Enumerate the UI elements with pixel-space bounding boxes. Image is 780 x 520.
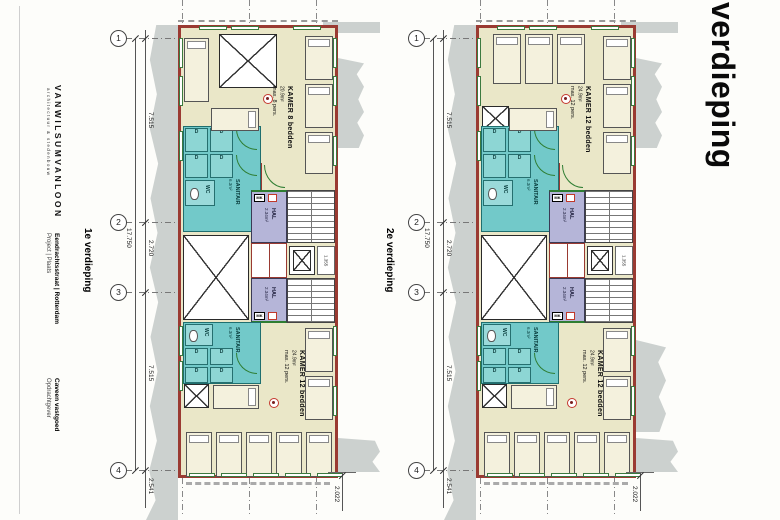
shower-stall: D: [483, 128, 506, 152]
hall-area: 2.34m²: [264, 208, 269, 222]
top-room-label: max. 12 pers. 24.9m² KAMER 12 bedden: [569, 86, 591, 153]
room-badge: [269, 398, 279, 408]
window-segment: [631, 136, 635, 166]
grid-marker-3: 3: [408, 284, 425, 301]
hall-lower: 2.34m² HAL MK: [549, 278, 585, 323]
elevator: [587, 246, 613, 275]
bed-pillow: [606, 331, 628, 339]
bed: [305, 132, 333, 174]
window-segment: [631, 386, 635, 416]
hall-label-block: 2.34m² HAL: [264, 287, 276, 301]
room-capacity: max. 12 pers.: [283, 350, 289, 383]
sanitair-label: SANITAIR: [532, 179, 538, 205]
bed-pillow: [308, 331, 330, 339]
elevator: [289, 246, 315, 275]
bed-pillow: [560, 37, 582, 45]
hall-lower: 2.34m² HAL MK: [251, 278, 287, 323]
dim-seg-below: 2.541: [147, 478, 154, 494]
grid-marker-1: 1: [110, 30, 127, 47]
void-shaft-middle: [183, 235, 249, 320]
bed: [511, 385, 557, 409]
sanitary-block-bottom: WC D D D D 6.3m² SANITAIR: [481, 322, 559, 384]
bottom-room-label: max. 12 pers. 24.9m² KAMER 12 bedden: [581, 350, 603, 417]
bed-pillow: [248, 111, 256, 128]
floorplan-sheet: architectuur & stedenbouw VANWILSUMVANLO…: [0, 0, 780, 520]
firm-name: VANWILSUMVANLOON: [53, 85, 63, 219]
grid-leader: [424, 292, 476, 293]
toilet-icon: [189, 330, 198, 342]
window-segment: [477, 38, 481, 68]
shower-stall: D: [483, 367, 506, 383]
shower-stall: D: [508, 154, 531, 178]
wc-room: WC: [483, 324, 511, 346]
room-name: KAMER 12 bedden: [298, 350, 305, 417]
dim-line-right: [640, 473, 641, 511]
sanitary-block-top: D D D D WC 6.3m² SANITAIR: [183, 126, 261, 232]
void-shaft-middle: [481, 235, 547, 320]
wc-room: WC: [185, 180, 215, 206]
window-segment: [221, 473, 247, 477]
bed-pillow: [607, 435, 627, 443]
context-band-left: [444, 25, 476, 520]
wc-label: WC: [204, 185, 210, 193]
window-segment: [477, 76, 481, 106]
window-segment: [333, 38, 337, 68]
bed: [216, 432, 242, 477]
room-capacity: max. 12 pers.: [581, 350, 587, 383]
bed-pillow: [219, 435, 239, 443]
floorplan-1e-verdieping: 1 2 3 4 17.750 7.515 2.720 7.515 2.541: [110, 0, 402, 520]
shower-stall: D: [483, 154, 506, 178]
toilet-icon: [488, 188, 497, 200]
door-arc: [534, 129, 555, 150]
bed: [305, 328, 333, 372]
door-arc: [534, 353, 555, 374]
dim-total: 17.750: [423, 228, 430, 248]
bed-pillow: [187, 41, 206, 49]
grid-line: [182, 478, 183, 514]
window-segment: [333, 136, 337, 166]
room-name: KAMER 12 bedden: [584, 86, 591, 153]
window-segment: [285, 473, 311, 477]
elevator-car: [591, 250, 609, 271]
window-segment: [477, 326, 481, 356]
wc-label: WC: [203, 328, 209, 336]
core-closets: [251, 243, 287, 278]
bed: [276, 432, 302, 477]
bed-pillow: [249, 435, 269, 443]
building-outline: D D D D WC 6.3m² SANITAIR: [476, 25, 636, 478]
room-area: 24.9m²: [577, 86, 583, 102]
bed-pillow: [577, 435, 597, 443]
bed: [544, 432, 570, 477]
sanitair-label-block: 6.3m² SANITAIR: [228, 327, 240, 353]
hall-area: 2.34m²: [562, 208, 567, 222]
building-outline: D D D D WC 6.3m² SANITAIR: [178, 25, 338, 478]
context-block-right-bottom: [338, 438, 380, 472]
dimension-line-total: [433, 38, 434, 470]
bed: [305, 84, 333, 128]
room-name: KAMER 12 bedden: [596, 350, 603, 417]
dimension-line-segments: [145, 30, 146, 508]
window-segment: [591, 26, 619, 30]
shower-stall: D: [210, 367, 233, 383]
project-label: Project | Plaats: [45, 233, 51, 273]
staircase-upper: [287, 190, 335, 243]
bed: [493, 34, 521, 84]
window-segment: [583, 473, 609, 477]
wc-label: WC: [501, 328, 507, 336]
dim-total: 17.750: [125, 228, 132, 248]
core-shaft: 1.355: [317, 246, 335, 275]
void-shaft-bottom-small: [482, 384, 507, 408]
room-badge: [561, 94, 571, 104]
hall-upper: MK 2.34m² HAL: [251, 190, 287, 243]
window-segment: [487, 473, 513, 477]
client-value: Caveen vastgoed: [53, 378, 60, 431]
bed-pillow: [309, 435, 329, 443]
toilet-icon: [190, 188, 199, 200]
grid-marker-4: 4: [408, 462, 425, 479]
sanitair-label-block: 6.3m² SANITAIR: [228, 179, 240, 205]
bed-pillow: [517, 435, 537, 443]
window-segment: [551, 473, 577, 477]
dim-seg-top: 7.515: [147, 112, 154, 128]
bed: [484, 432, 510, 477]
wc-label: WC: [502, 185, 508, 193]
room-name: KAMER 8 bedden: [286, 86, 293, 149]
grid-marker-3: 3: [110, 284, 127, 301]
floorplan-2e-verdieping: 1 2 3 4 17.750 7.515 2.720 7.515 2.541: [408, 0, 700, 520]
room-area: 24.9m²: [589, 350, 595, 366]
bed: [514, 432, 540, 477]
shower-stall: D: [210, 128, 233, 152]
sanitair-label: SANITAIR: [234, 179, 240, 205]
window-segment: [497, 26, 525, 30]
shower-stall: D: [185, 348, 208, 365]
sanitair-area: 6.3m²: [526, 179, 531, 191]
staircase-lower: [585, 278, 633, 323]
sanitary-block-bottom: WC D D D D 6.3m² SANITAIR: [183, 322, 261, 384]
bed-pillow: [546, 111, 554, 128]
hall-label-block: 2.34m² HAL: [264, 208, 276, 222]
void-shaft-top: [219, 34, 277, 88]
core-shaft: 1.355: [615, 246, 633, 275]
sanitair-label: SANITAIR: [234, 327, 240, 353]
elevator-car: [293, 250, 311, 271]
sanitair-label-block: 6.3m² SANITAIR: [526, 179, 538, 205]
entry-vestibule: [559, 163, 585, 190]
shower-stall: D: [185, 154, 208, 178]
staircase-upper: [585, 190, 633, 243]
bed: [604, 432, 630, 477]
bed-pillow: [606, 39, 628, 47]
sheet-big-title: verdieping: [704, 2, 741, 169]
dim-line-right: [342, 473, 343, 511]
project-block: Project | Plaats Eendrachtsstraat | Rott…: [45, 233, 60, 324]
bed: [603, 132, 631, 174]
entry-vestibule: [261, 163, 287, 190]
context-block-right-bottom: [636, 438, 678, 472]
sanitair-area: 6.3m²: [228, 327, 233, 339]
room-capacity: max. 12 pers.: [569, 86, 575, 119]
bed: [305, 36, 333, 80]
window-segment: [179, 326, 183, 356]
door-arc: [562, 165, 583, 188]
bed: [603, 84, 631, 128]
window-segment: [179, 131, 183, 161]
context-block-right-top: [338, 58, 364, 148]
bed: [211, 108, 259, 131]
shower-stall: D: [508, 128, 531, 152]
grid-leader: [126, 222, 178, 223]
staircase-lower: [287, 278, 335, 323]
hall-area: 2.34m²: [264, 287, 269, 301]
window-segment: [631, 76, 635, 106]
door-arc: [534, 155, 555, 176]
balcony-edge-top: [476, 20, 636, 22]
meter-cupboard: MK: [552, 312, 563, 320]
sanitair-area: 6.3m²: [526, 327, 531, 339]
door-arc: [264, 165, 285, 188]
door-arc: [236, 129, 257, 150]
hall-label: HAL: [270, 208, 276, 219]
hall-label: HAL: [270, 287, 276, 298]
window-segment: [231, 26, 259, 30]
grid-marker-4: 4: [110, 462, 127, 479]
core-closets: [549, 243, 585, 278]
hall-label: HAL: [568, 287, 574, 298]
hall-area: 2.34m²: [562, 287, 567, 301]
bed: [574, 432, 600, 477]
shower-stall: D: [483, 348, 506, 365]
grid-leader: [424, 222, 476, 223]
bed: [306, 432, 332, 477]
door-arc: [236, 155, 257, 176]
bed-pillow: [606, 135, 628, 143]
sheet-edge-line: [19, 6, 20, 514]
top-room-label: max. 8 pers. 20.9m² KAMER 8 bedden: [271, 86, 293, 149]
bed-pillow: [606, 379, 628, 387]
window-segment: [293, 26, 321, 30]
window-segment: [477, 361, 481, 391]
grid-marker-1: 1: [408, 30, 425, 47]
balcony-edge-bottom: [186, 482, 330, 485]
bed-pillow: [308, 39, 330, 47]
bed: [557, 34, 585, 84]
shower-stall: D: [508, 367, 531, 383]
bed-pillow: [547, 435, 567, 443]
context-band-left: [146, 25, 178, 520]
meter-cupboard: MK: [254, 312, 265, 320]
room-area: 20.9m²: [279, 86, 285, 102]
balcony-edge-bottom: [484, 482, 628, 485]
grid-line: [480, 478, 481, 514]
window-segment: [529, 26, 557, 30]
floor-title-left: 1e verdieping: [82, 228, 93, 292]
project-value: Eendrachtsstraat | Rotterdam: [53, 233, 60, 324]
fixture-box: [268, 312, 277, 320]
bed-pillow: [189, 435, 209, 443]
window-segment: [179, 76, 183, 106]
door-arc: [236, 353, 257, 374]
shower-stall: D: [185, 367, 208, 383]
sanitary-block-top: D D D D WC 6.3m² SANITAIR: [481, 126, 559, 232]
window-segment: [333, 386, 337, 416]
bed-pillow: [248, 388, 256, 406]
bed-pillow: [496, 37, 518, 45]
dim-seg-bottom: 7.515: [445, 365, 452, 381]
window-segment: [333, 76, 337, 106]
dim-right-bottom: 2.022: [333, 486, 340, 502]
room-badge: [263, 94, 273, 104]
bed-pillow: [528, 37, 550, 45]
meter-cupboard: MK: [254, 194, 265, 202]
hall-label-block: 2.34m² HAL: [562, 287, 574, 301]
shower-stall: D: [185, 128, 208, 152]
window-segment: [519, 473, 545, 477]
bottom-room-label: max. 12 pers. 24.9m² KAMER 12 bedden: [283, 350, 305, 417]
hall-label: HAL: [568, 208, 574, 219]
bed-pillow: [279, 435, 299, 443]
bed-pillow: [308, 379, 330, 387]
window-segment: [477, 131, 481, 161]
room-badge: [567, 398, 577, 408]
window-segment: [189, 473, 215, 477]
window-segment: [199, 26, 227, 30]
bed: [603, 328, 631, 372]
bed-pillow: [308, 135, 330, 143]
fixture-box: [268, 194, 277, 202]
bed: [603, 376, 631, 420]
hall-upper: MK 2.34m² HAL: [549, 190, 585, 243]
window-segment: [631, 38, 635, 68]
bed-pillow: [546, 388, 554, 406]
bed: [213, 385, 259, 409]
void-shaft-bottom-small: [184, 384, 209, 408]
dimension-line-segments: [443, 30, 444, 508]
room-area: 24.9m²: [291, 350, 297, 366]
shower-stall: D: [210, 154, 233, 178]
dim-seg-mid: 2.720: [445, 240, 452, 256]
window-segment: [179, 38, 183, 68]
client-label: Opdrachtgever: [45, 378, 51, 418]
client-block: Opdrachtgever Caveen vastgoed: [45, 378, 60, 431]
dim-seg-below: 2.541: [445, 478, 452, 494]
bed: [305, 376, 333, 420]
sanitair-label: SANITAIR: [532, 327, 538, 353]
fixture-box: [566, 194, 575, 202]
wc-room: WC: [483, 180, 513, 206]
dim-right-bottom: 2.022: [631, 486, 638, 502]
bed: [603, 36, 631, 80]
toilet-icon: [487, 330, 496, 342]
dim-seg-top: 7.515: [445, 112, 452, 128]
bed: [525, 34, 553, 84]
window-segment: [631, 326, 635, 356]
bed: [184, 38, 209, 102]
bed-pillow: [308, 87, 330, 95]
dim-seg-bottom: 7.515: [147, 365, 154, 381]
bed: [246, 432, 272, 477]
window-segment: [253, 473, 279, 477]
sanitair-area: 6.3m²: [228, 179, 233, 191]
bed: [186, 432, 212, 477]
balcony-edge-top: [178, 20, 338, 22]
core-dim: 1.355: [622, 255, 627, 266]
bed-pillow: [487, 435, 507, 443]
context-block-right-top: [636, 58, 662, 148]
hall-label-block: 2.34m² HAL: [562, 208, 574, 222]
core-dim: 1.355: [324, 255, 329, 266]
fixture-box: [566, 312, 575, 320]
firm-subtitle: architectuur & stedenbouw: [46, 88, 51, 176]
window-segment: [179, 361, 183, 391]
context-block-right-mid: [636, 340, 666, 432]
grid-leader: [126, 292, 178, 293]
window-segment: [333, 326, 337, 356]
sanitair-label-block: 6.3m² SANITAIR: [526, 327, 538, 353]
dim-seg-mid: 2.720: [147, 240, 154, 256]
dimension-line-total: [135, 38, 136, 470]
meter-cupboard: MK: [552, 194, 563, 202]
bed: [509, 108, 557, 131]
bed-pillow: [606, 87, 628, 95]
wc-room: WC: [185, 324, 213, 346]
